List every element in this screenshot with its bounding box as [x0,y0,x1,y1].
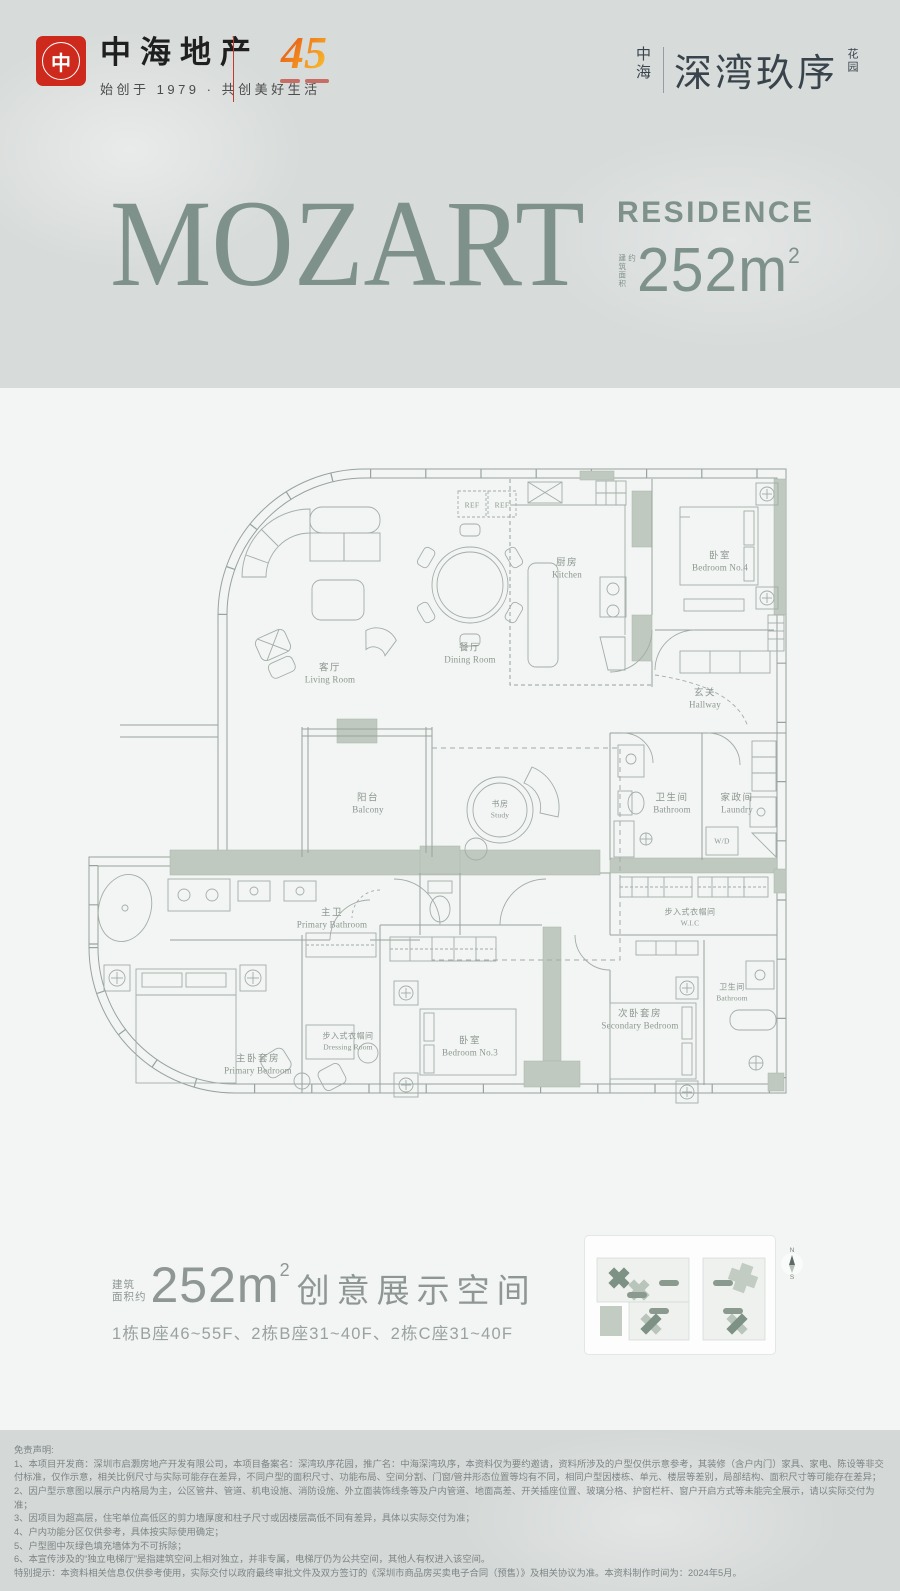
room-label-bathroom-2: 卫生间Bathroom [716,982,748,1003]
disclaimer-line: 特别提示：本资料相关信息仅供参考使用，实际交付以政府最终审批文件及双方签订的《深… [14,1567,888,1581]
north-label: N [781,1247,803,1254]
brand-divider [233,36,234,102]
disclaimer-line: 4、户内功能分区仅供参考，具体按实际使用确定； [14,1526,888,1540]
disclaimer-line: 6、本宣传涉及的“独立电梯厅”是指建筑空间上相对独立，并非专属，电梯厅仍为公共空… [14,1553,888,1567]
caption-area-label: 建筑 面积约 [112,1279,147,1304]
project-suffix: 花园 [844,48,860,78]
ref-label-1: REF [465,501,480,510]
project-name: 深湾玖序 [674,42,838,97]
anniversary-badge: 45 [256,30,352,83]
caption-floors: 1栋B座46~55F、2栋B座31~40F、2栋C座31~40F [112,1320,537,1344]
poster-page: 中 中海地产 始创于 1979 · 共创美好生活 45 中海 深湾玖序 花园 M… [0,0,900,1591]
room-label-dining-room: 餐厅Dining Room [444,640,495,665]
room-label-dressing-room: 步入式衣帽间Dressing Room [323,1031,374,1052]
room-label-wic: 步入式衣帽间W.I.C [665,907,716,928]
ref-label-2: REF [495,501,510,510]
south-needle-icon [789,1265,795,1273]
disclaimer-line: 2、因户型示意图以展示户内格局为主，公区管井、管道、机电设施、消防设施、外立面装… [14,1485,888,1512]
north-arrow: N S [781,1247,803,1281]
hero-area-sup: 2 [788,243,801,268]
caption-block: 建筑 面积约 252m2 创意展示空间 1栋B座46~55F、2栋B座31~40… [112,1262,537,1344]
project-prefix: 中海 [632,46,653,94]
caption-title: 创意展示空间 [297,1274,537,1307]
project-divider [663,47,664,93]
hero-right-block: RESIDENCE 建筑面积约 252m2 [617,196,815,302]
anniversary-subtext-decor [256,79,352,83]
room-label-bathroom-hall: 卫生间Bathroom [653,790,691,815]
floorplan: 客厅Living Room 餐厅Dining Room 厨房Kitchen 卧室… [80,465,800,1145]
room-label-laundry: 家政间Laundry [720,790,753,815]
caption-area-value: 252m2 [151,1262,291,1308]
room-label-bedroom-4: 卧室Bedroom No.4 [692,548,748,573]
anniversary-number: 45 [256,30,352,76]
room-label-secondary-bedroom: 次卧套房Secondary Bedroom [601,1006,678,1031]
brand-logo-glyph: 中 [42,42,80,80]
disclaimer-title: 免责声明: [14,1444,888,1458]
wd-label: W/D [714,837,729,846]
hero-area-value: 252m2 [637,240,801,302]
room-label-hallway: 玄关Hallway [689,685,721,710]
hero-subtitle: RESIDENCE [617,196,815,230]
room-label-primary-bathroom: 主卫Primary Bathroom [297,905,367,930]
room-label-study: 书房Study [491,799,510,820]
hero-area-number: 252m [637,236,788,305]
hero-area-label: 建筑面积约 [617,254,637,288]
disclaimer-line: 3、因项目为超高层，住宅单位高低区的剪力墙厚度和柱子尺寸或因楼层高低不同有差异，… [14,1512,888,1526]
hero-title: MOZART [110,182,585,306]
disclaimer: 免责声明: 1、本项目开发商：深圳市启灏房地产开发有限公司，本项目备案名：深湾玖… [14,1444,888,1581]
project-logo: 中海 深湾玖序 花园 [632,42,860,97]
caption-area-row: 建筑 面积约 252m2 创意展示空间 [112,1262,537,1308]
room-label-bedroom-3: 卧室Bedroom No.3 [442,1033,498,1058]
site-keyplan [585,1236,775,1354]
room-label-balcony: 阳台Balcony [352,790,383,815]
room-label-primary-bedroom: 主卧套房Primary Bedroom [224,1051,292,1076]
hero-area: 建筑面积约 252m2 [617,240,815,302]
room-label-kitchen: 厨房Kitchen [552,555,582,580]
room-label-living-room: 客厅Living Room [305,660,355,685]
keyplan-drawing [585,1236,775,1354]
brand-logo-icon: 中 [36,36,86,86]
north-needle-icon [789,1255,795,1265]
disclaimer-line: 5、户型图中灰绿色填充墙体为不可拆除； [14,1540,888,1554]
header-band: 中 中海地产 始创于 1979 · 共创美好生活 45 中海 深湾玖序 花园 M… [0,0,900,388]
footer-band: 免责声明: 1、本项目开发商：深圳市启灏房地产开发有限公司，本项目备案名：深湾玖… [0,1430,900,1591]
south-label: S [781,1274,803,1281]
disclaimer-line: 1、本项目开发商：深圳市启灏房地产开发有限公司，本项目备案名：深湾玖序花园，推广… [14,1458,888,1485]
